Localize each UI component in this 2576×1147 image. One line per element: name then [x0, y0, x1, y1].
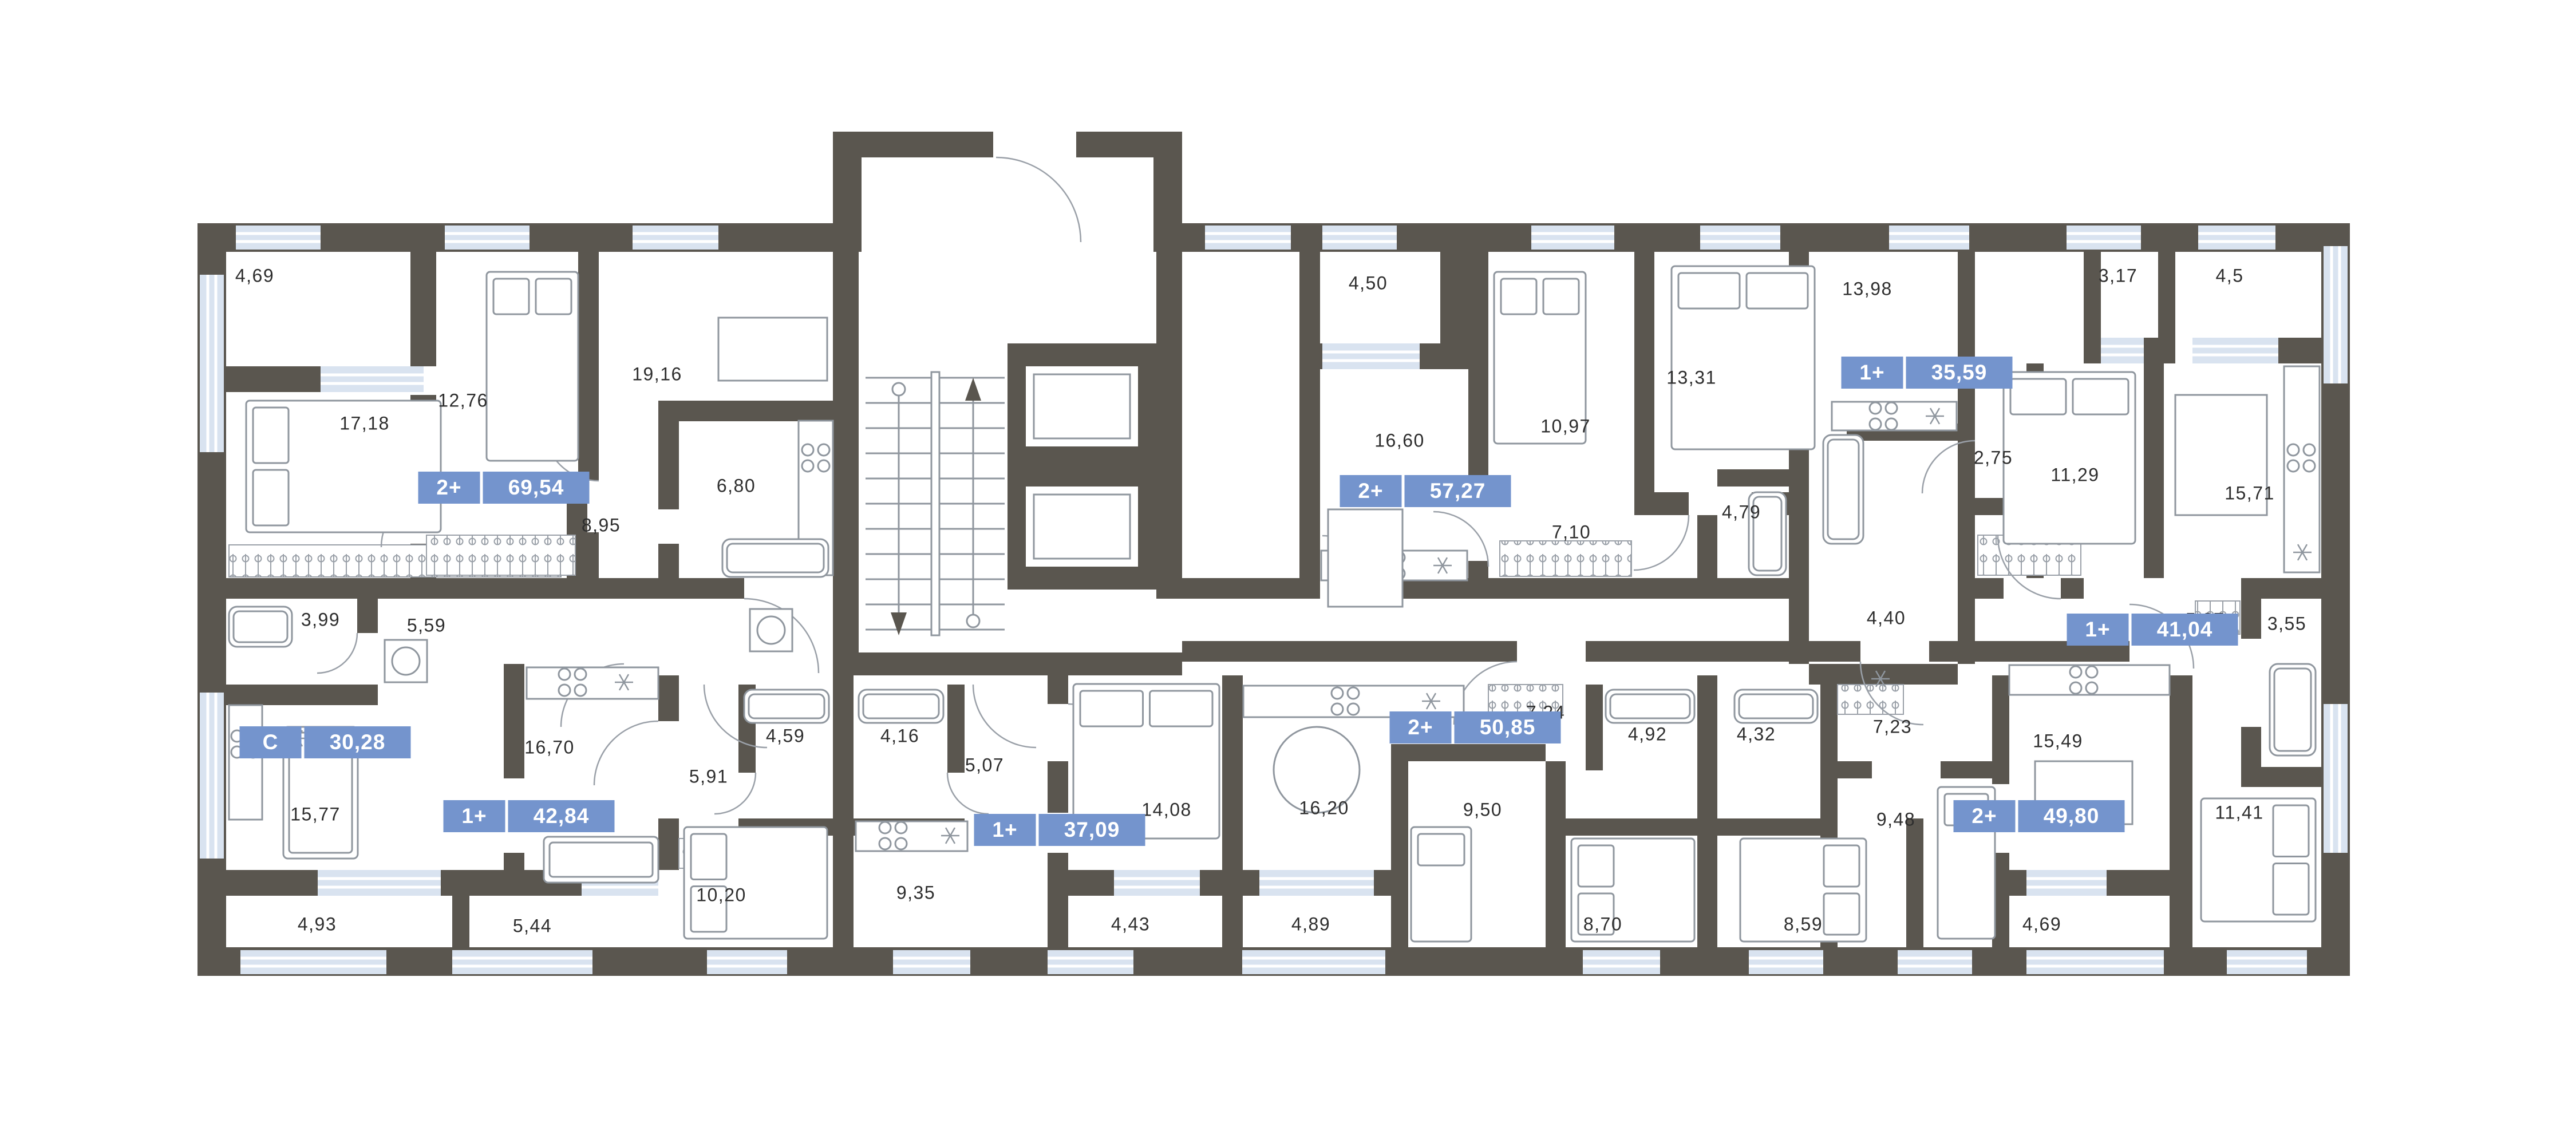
window [2026, 950, 2164, 974]
room-area-label: 9,50 [1463, 800, 1502, 821]
bed [1672, 266, 1815, 449]
apartment-area: 69,54 [483, 472, 590, 504]
room-area-label: 5,91 [689, 766, 728, 788]
room-area-label: 7,10 [1552, 522, 1591, 543]
bed [684, 827, 827, 939]
apartment-type: 2+ [1954, 800, 2016, 832]
hob-burner-icon [559, 685, 570, 696]
hob-burner-icon [2304, 444, 2315, 456]
bathtub [1735, 690, 1818, 723]
apartment-area: 30,28 [305, 726, 411, 758]
apartment-area: 41,04 [2132, 614, 2238, 646]
floor-plan: 4,6917,1812,7619,168,956,803,995,5915,77… [0, 0, 2576, 1147]
apartment-area: 37,09 [1039, 814, 1145, 846]
room-area-label: 15,77 [290, 804, 341, 825]
window [240, 950, 386, 974]
stairs [866, 372, 1005, 635]
washing-machine-icon [750, 609, 792, 651]
room-area-label: 4,5 [2216, 266, 2244, 287]
bathtub [1606, 690, 1694, 723]
apartment-badge: 2+49,80 [1954, 800, 2125, 832]
window [2192, 338, 2278, 363]
apartment-area: 49,80 [2018, 800, 2125, 832]
hob-burner-icon [2070, 666, 2081, 678]
window [2227, 950, 2307, 974]
hob-burner-icon [2287, 444, 2299, 456]
window [1322, 226, 1397, 250]
hob-burner-icon [802, 444, 813, 456]
window [1048, 950, 1133, 974]
room-area-label: 3,17 [2099, 266, 2138, 287]
hob-burner-icon [818, 444, 829, 456]
room-area-label: 10,20 [696, 885, 746, 906]
room-area-label: 5,07 [965, 755, 1004, 776]
room-area-label: 4,50 [1349, 273, 1388, 294]
room-area-label: 11,29 [2050, 465, 2099, 486]
sofa [544, 837, 658, 883]
washing-machine-icon [385, 640, 427, 682]
apartment-type: 1+ [974, 814, 1036, 846]
apartment-type: 1+ [2067, 614, 2129, 646]
room-area-label: 16,20 [1299, 798, 1349, 819]
table [718, 318, 827, 381]
room-area-label: 15,71 [2225, 483, 2275, 504]
window [1700, 226, 1780, 250]
window [1322, 343, 1420, 369]
room-area-label: 14,08 [1141, 800, 1192, 821]
hob-burner-icon [2086, 682, 2097, 694]
room-area-label: 7,23 [1873, 717, 1912, 738]
hob-burner-icon [559, 669, 570, 680]
hob-burner-icon [802, 460, 813, 472]
apartment-badge: 2+57,27 [1340, 475, 1511, 507]
room-area-label: 4,32 [1737, 724, 1776, 745]
hob-burner-icon [2070, 682, 2081, 694]
apartment-type: 1+ [1842, 357, 1903, 389]
window [707, 950, 787, 974]
bed [1411, 827, 1471, 942]
apartment-type: C [240, 726, 302, 758]
room-area-label: 4,59 [766, 726, 805, 747]
room-area-label: 19,16 [632, 364, 682, 385]
hob-burner-icon [1886, 402, 1897, 414]
window [2101, 338, 2144, 363]
hob-burner-icon [575, 685, 586, 696]
apartment-type: 2+ [418, 472, 480, 504]
room-area-label: 12,76 [438, 390, 488, 412]
hob-burner-icon [895, 838, 907, 849]
hob-burner-icon [818, 460, 829, 472]
room-area-label: 2,75 [1974, 448, 2013, 469]
window [1259, 870, 1374, 896]
hob-burner-icon [1870, 402, 1881, 414]
window [1114, 870, 1200, 896]
room-area-label: 3,99 [301, 610, 340, 631]
apartment-area: 35,59 [1906, 357, 2013, 389]
room-area-label: 4,79 [1722, 502, 1761, 523]
hob-burner-icon [1870, 418, 1881, 430]
bathtub [2270, 664, 2316, 756]
window [2026, 870, 2107, 896]
room-area-label: 4,92 [1628, 724, 1667, 745]
window [321, 366, 424, 392]
window [2324, 246, 2348, 383]
apartment-type: 2+ [1390, 711, 1452, 743]
window [1583, 950, 1660, 974]
hob-burner-icon [1332, 687, 1343, 699]
apartment-badge: 2+50,85 [1390, 711, 1561, 743]
window [1898, 950, 1972, 974]
hob-burner-icon [1348, 703, 1359, 715]
bed [2004, 372, 2135, 544]
room-area-label: 4,93 [298, 914, 337, 935]
window [1242, 950, 1385, 974]
apartment-type: 1+ [444, 800, 505, 832]
hob-burner-icon [1886, 418, 1897, 430]
hob-burner-icon [2086, 666, 2097, 678]
window [2324, 704, 2348, 853]
apartment-area: 57,27 [1405, 475, 1511, 507]
apartment-area: 50,85 [1455, 711, 1561, 743]
bathtub [744, 690, 829, 723]
hob-burner-icon [1348, 687, 1359, 699]
room-area-label: 10,97 [1540, 416, 1591, 437]
room-area-label: 4,69 [2022, 914, 2061, 935]
window [452, 950, 592, 974]
apartment-badge: C30,28 [240, 726, 411, 758]
window [1531, 226, 1614, 250]
kitchen-counter [229, 705, 262, 820]
bathtub [859, 690, 943, 723]
room-area-label: 4,43 [1111, 914, 1150, 935]
hob-burner-icon [895, 822, 907, 833]
bathtub [229, 607, 292, 647]
table [1328, 509, 1402, 607]
room-area-label: 13,98 [1842, 279, 1893, 300]
hob-burner-icon [2304, 460, 2315, 472]
window [1749, 950, 1823, 974]
window [200, 275, 224, 452]
hob-burner-icon [879, 838, 891, 849]
hob-burner-icon [879, 822, 891, 833]
window [633, 226, 718, 250]
room-area-label: 16,60 [1374, 430, 1425, 452]
hob-burner-icon [575, 669, 586, 680]
window [1889, 226, 1969, 250]
floor-plan-drawing [0, 0, 2576, 1147]
apartment-badge: 1+41,04 [2067, 614, 2238, 646]
room-area-label: 13,31 [1666, 367, 1717, 389]
room-area-label: 3,55 [2267, 614, 2306, 635]
window [318, 870, 441, 896]
room-area-label: 8,95 [582, 515, 621, 536]
room-area-label: 16,70 [524, 737, 575, 758]
apartment-badge: 1+42,84 [444, 800, 615, 832]
bathtub [722, 539, 828, 577]
room-area-label: 11,41 [2215, 802, 2263, 824]
window [236, 226, 321, 250]
room-area-label: 17,18 [339, 413, 390, 434]
room-area-label: 4,40 [1867, 608, 1906, 629]
hob-burner-icon [1332, 703, 1343, 715]
hob-burner-icon [2287, 460, 2299, 472]
apartment-badge: 2+69,54 [418, 472, 590, 504]
window [893, 950, 970, 974]
window [2198, 226, 2275, 250]
window [445, 226, 530, 250]
room-area-label: 5,44 [513, 916, 552, 937]
room-area-label: 8,59 [1784, 914, 1823, 935]
window [2067, 226, 2141, 250]
room-area-label: 5,59 [407, 615, 446, 636]
room-area-label: 15,49 [2033, 731, 2083, 752]
apartment-badge: 1+35,59 [1842, 357, 2013, 389]
window [1205, 226, 1291, 250]
window [200, 693, 224, 859]
apartment-type: 2+ [1340, 475, 1402, 507]
bathtub [1823, 435, 1863, 544]
room-area-label: 4,89 [1291, 914, 1330, 935]
room-area-label: 4,16 [880, 726, 919, 747]
room-area-label: 4,69 [235, 266, 274, 287]
room-area-label: 9,48 [1876, 809, 1915, 830]
room-area-label: 9,35 [896, 883, 935, 904]
apartment-badge: 1+37,09 [974, 814, 1145, 846]
kitchen-counter [527, 667, 658, 699]
room-area-label: 8,70 [1583, 914, 1622, 935]
bed [487, 272, 578, 461]
room-area-label: 6,80 [717, 476, 756, 497]
apartment-area: 42,84 [508, 800, 615, 832]
